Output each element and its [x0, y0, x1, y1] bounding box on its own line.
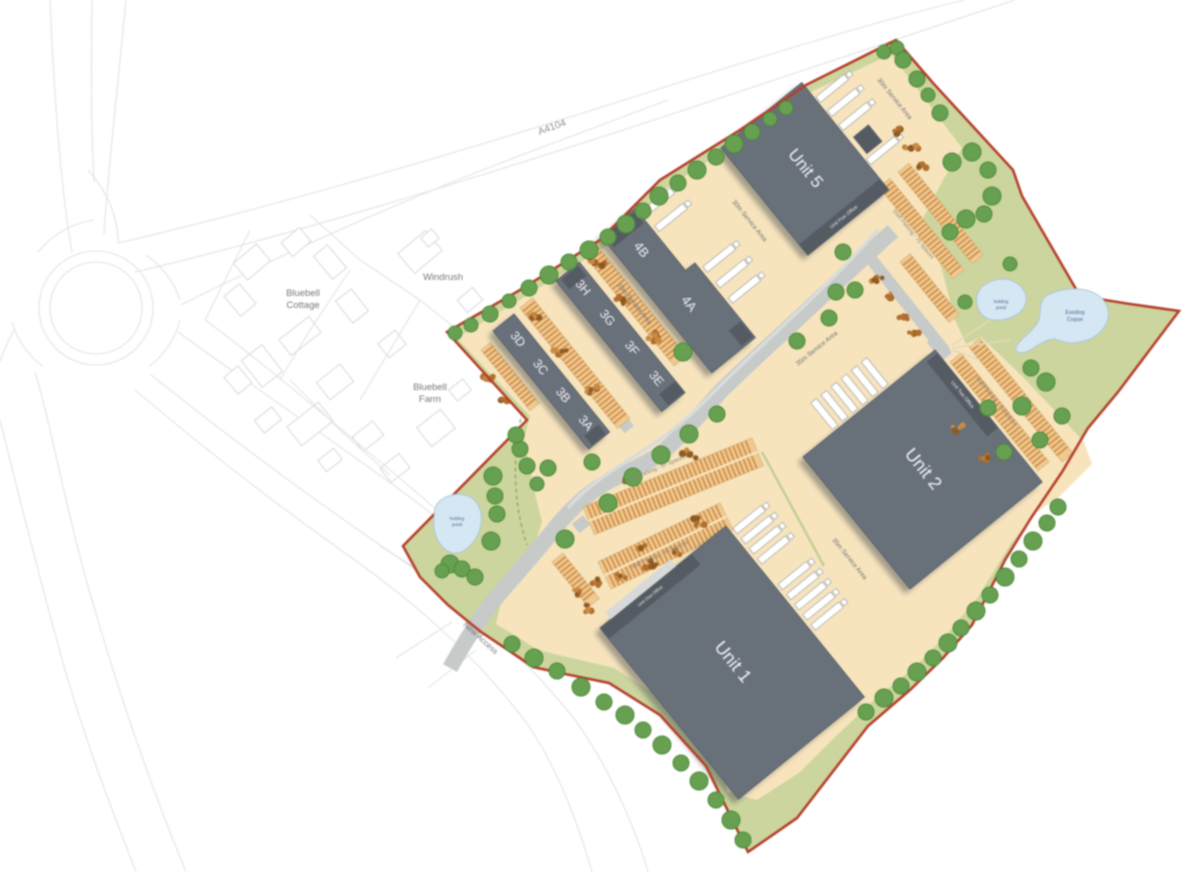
svg-text:Bluebell: Bluebell [413, 382, 447, 393]
svg-text:pond: pond [996, 305, 1007, 310]
svg-text:holding: holding [994, 299, 1009, 304]
svg-text:holding: holding [450, 516, 465, 521]
svg-text:Cottage: Cottage [286, 300, 319, 311]
svg-text:pond: pond [452, 522, 463, 527]
svg-text:Existing: Existing [1065, 310, 1084, 316]
svg-text:Windrush: Windrush [423, 272, 463, 283]
svg-text:Copse: Copse [1067, 317, 1083, 323]
svg-text:Farm: Farm [419, 394, 441, 405]
svg-text:Bluebell: Bluebell [286, 288, 320, 299]
